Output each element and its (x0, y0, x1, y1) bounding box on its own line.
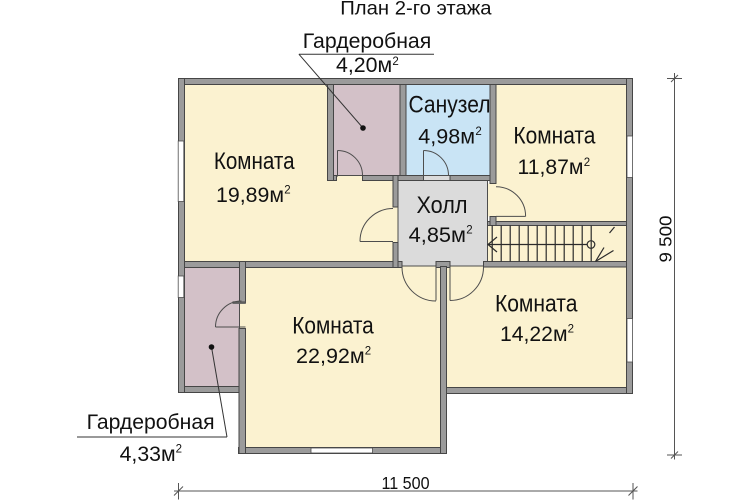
svg-text:4,85м: 4,85м (409, 224, 466, 247)
svg-text:2: 2 (392, 56, 398, 68)
svg-text:2: 2 (365, 346, 371, 358)
svg-text:19,89м: 19,89м (216, 184, 284, 207)
svg-text:Комната: Комната (214, 148, 295, 175)
svg-text:14,22м: 14,22м (500, 323, 568, 346)
svg-text:2: 2 (466, 225, 472, 237)
svg-text:2: 2 (176, 443, 182, 455)
svg-text:2: 2 (568, 324, 574, 336)
svg-text:2: 2 (284, 185, 290, 197)
svg-text:22,92м: 22,92м (296, 345, 365, 368)
svg-text:9 500: 9 500 (656, 216, 676, 263)
svg-text:Комната: Комната (513, 122, 596, 149)
svg-text:План 2-го этажа: План 2-го этажа (340, 0, 491, 20)
svg-text:Санузел: Санузел (409, 92, 491, 119)
svg-text:Холл: Холл (417, 192, 468, 219)
svg-text:Комната: Комната (292, 313, 374, 340)
svg-text:Комната: Комната (495, 291, 578, 318)
svg-text:Гардеробная: Гардеробная (87, 409, 215, 434)
svg-text:2: 2 (475, 126, 481, 138)
svg-text:11,87м: 11,87м (518, 156, 584, 179)
svg-text:4,20м: 4,20м (336, 54, 392, 77)
svg-text:Гардеробная: Гардеробная (303, 28, 432, 53)
svg-text:2: 2 (584, 157, 590, 169)
svg-text:4,98м: 4,98м (418, 125, 475, 148)
svg-text:4,33м: 4,33м (120, 443, 176, 466)
svg-text:11 500: 11 500 (381, 473, 429, 493)
